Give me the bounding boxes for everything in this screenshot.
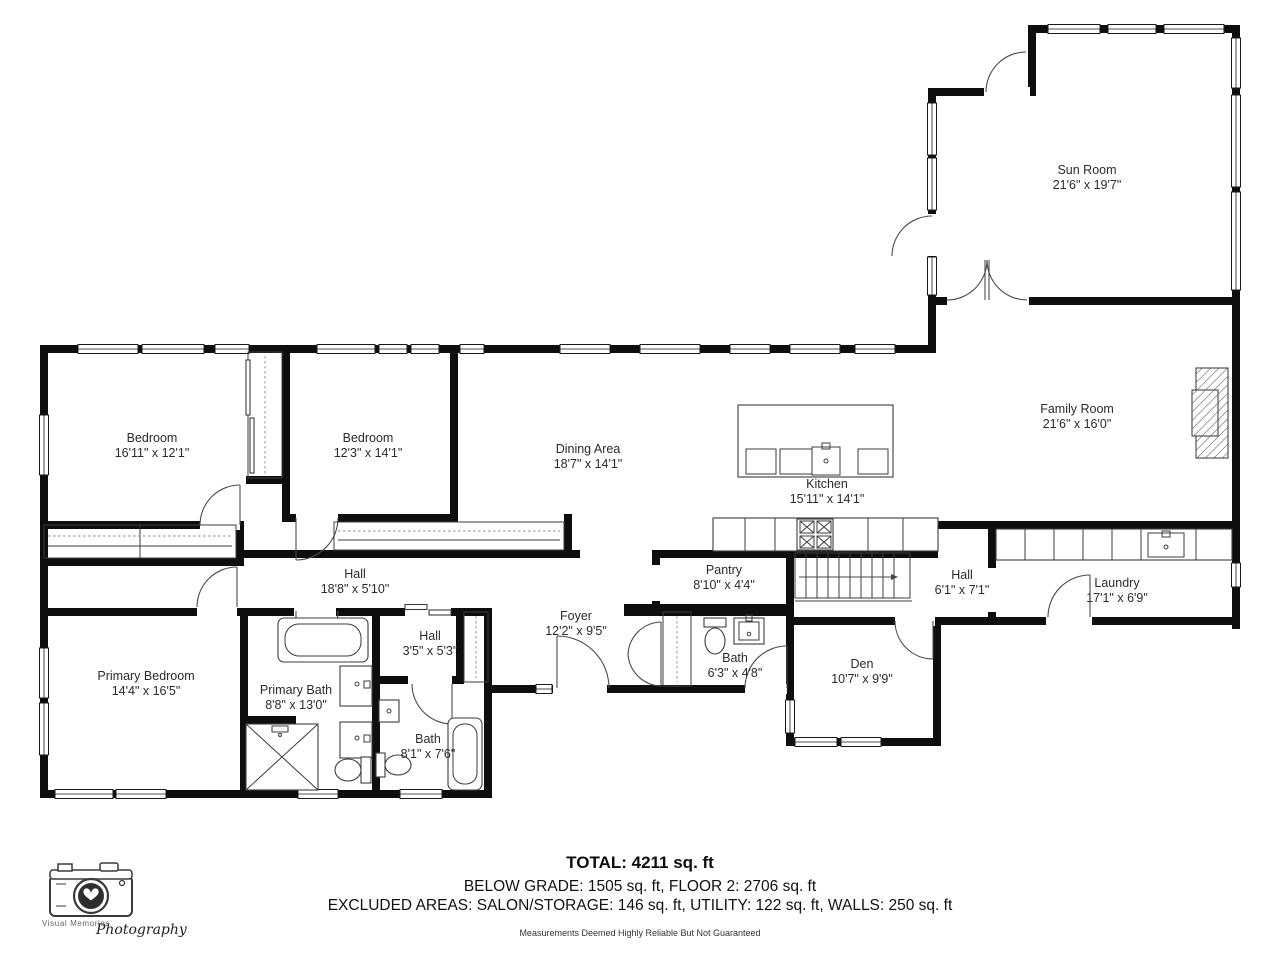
window	[40, 703, 49, 755]
svg-text:8'1" x 7'6": 8'1" x 7'6"	[401, 747, 456, 761]
summary-disclaimer: Measurements Deemed Highly Reliable But …	[519, 928, 760, 938]
closet	[334, 522, 564, 550]
closet	[663, 612, 691, 686]
closet-double-door	[628, 622, 661, 686]
window	[298, 790, 338, 799]
svg-text:16'11" x 12'1": 16'11" x 12'1"	[115, 446, 190, 460]
svg-text:Pantry: Pantry	[706, 563, 743, 577]
sink-icon	[340, 722, 372, 758]
svg-text:Bath: Bath	[722, 651, 748, 665]
door-arc	[1048, 575, 1090, 617]
svg-text:Hall: Hall	[419, 629, 441, 643]
svg-text:Primary Bedroom: Primary Bedroom	[97, 669, 194, 683]
window	[40, 648, 49, 698]
svg-text:Bedroom: Bedroom	[127, 431, 178, 445]
svg-text:Hall: Hall	[951, 568, 973, 582]
door-arc	[200, 485, 240, 525]
svg-text:17'1" x 6'9": 17'1" x 6'9"	[1086, 591, 1148, 605]
window	[730, 345, 770, 354]
window	[1048, 25, 1100, 34]
room-label-laundry: Laundry17'1" x 6'9"	[1086, 576, 1148, 605]
toilet-icon	[704, 618, 726, 654]
window	[928, 103, 937, 155]
summary-block: TOTAL: 4211 sq. ft BELOW GRADE: 1505 sq.…	[328, 853, 953, 938]
summary-line2: BELOW GRADE: 1505 sq. ft, FLOOR 2: 2706 …	[464, 878, 817, 895]
window	[55, 790, 113, 799]
window	[841, 738, 881, 747]
room-label-bath-center: Bath6'3" x 4'8"	[708, 651, 763, 680]
svg-text:6'1" x 7'1": 6'1" x 7'1"	[935, 583, 990, 597]
window	[1232, 192, 1241, 290]
room-label-dining-area: Dining Area18'7" x 14'1"	[554, 442, 623, 471]
room-label-primary-bath: Primary Bath8'8" x 13'0"	[260, 683, 332, 712]
window	[1232, 95, 1241, 187]
window	[379, 345, 407, 354]
svg-text:Bedroom: Bedroom	[343, 431, 394, 445]
room-labels: Sun Room21'6" x 19'7" Family Room21'6" x…	[97, 163, 1147, 761]
room-label-bedroom-2: Bedroom12'3" x 14'1"	[334, 431, 403, 460]
sink-icon	[734, 615, 764, 644]
svg-text:3'5" x 5'3": 3'5" x 5'3"	[403, 644, 458, 658]
window	[536, 685, 552, 694]
svg-text:Den: Den	[851, 657, 874, 671]
room-label-den: Den10'7" x 9'9"	[831, 657, 893, 686]
svg-text:10'7" x 9'9": 10'7" x 9'9"	[831, 672, 893, 686]
svg-text:Family Room: Family Room	[1040, 402, 1114, 416]
floor-plan: Sun Room21'6" x 19'7" Family Room21'6" x…	[0, 0, 1280, 960]
camera-icon	[50, 863, 132, 916]
door-arc	[412, 684, 452, 724]
svg-text:12'3" x 14'1": 12'3" x 14'1"	[334, 446, 403, 460]
window	[1232, 38, 1241, 88]
room-label-family-room: Family Room21'6" x 16'0"	[1040, 402, 1114, 431]
window	[928, 257, 937, 295]
svg-text:Dining Area: Dining Area	[556, 442, 621, 456]
wall-openings	[197, 87, 1092, 694]
svg-text:Hall: Hall	[344, 567, 366, 581]
window	[640, 345, 700, 354]
door-arc	[895, 621, 933, 659]
window	[215, 345, 249, 354]
window	[411, 345, 439, 354]
window	[928, 158, 937, 210]
fireplace-icon	[1192, 368, 1228, 458]
sink-icon	[379, 700, 399, 722]
window	[1232, 563, 1241, 587]
svg-text:15'11" x 14'1": 15'11" x 14'1"	[790, 492, 865, 506]
room-label-foyer: Foyer12'2" x 9'5"	[545, 609, 607, 638]
window	[400, 790, 442, 799]
laundry-fixtures	[996, 529, 1232, 560]
svg-text:8'8" x 13'0": 8'8" x 13'0"	[265, 698, 327, 712]
summary-total: TOTAL: 4211 sq. ft	[566, 853, 714, 872]
svg-text:18'8" x 5'10": 18'8" x 5'10"	[321, 582, 390, 596]
svg-text:21'6" x 16'0": 21'6" x 16'0"	[1043, 417, 1112, 431]
room-label-bath-lower: Bath8'1" x 7'6"	[401, 732, 456, 761]
svg-text:Kitchen: Kitchen	[806, 477, 848, 491]
toilet-icon	[335, 757, 371, 783]
door-arc	[892, 216, 932, 256]
svg-text:Primary Bath: Primary Bath	[260, 683, 332, 697]
kitchen-island	[738, 405, 893, 477]
room-label-pantry: Pantry8'10" x 4'4"	[693, 563, 755, 592]
sink-icon	[340, 666, 372, 706]
window	[1108, 25, 1156, 34]
svg-text:14'4" x 16'5": 14'4" x 16'5"	[112, 684, 181, 698]
room-label-hall-main: Hall18'8" x 5'10"	[321, 567, 390, 596]
window	[786, 700, 795, 733]
window	[790, 345, 840, 354]
svg-text:12'2" x 9'5": 12'2" x 9'5"	[545, 624, 607, 638]
svg-text:18'7" x 14'1": 18'7" x 14'1"	[554, 457, 623, 471]
svg-text:Sun Room: Sun Room	[1057, 163, 1116, 177]
room-label-sun-room: Sun Room21'6" x 19'7"	[1053, 163, 1122, 192]
closet	[246, 352, 282, 478]
french-door	[947, 260, 1027, 300]
svg-text:Foyer: Foyer	[560, 609, 592, 623]
window	[78, 345, 138, 354]
room-label-kitchen: Kitchen15'11" x 14'1"	[790, 477, 865, 506]
summary-line3: EXCLUDED AREAS: SALON/STORAGE: 146 sq. f…	[328, 897, 953, 914]
window	[142, 345, 204, 354]
stove-icon	[797, 519, 833, 550]
photographer-logo: Visual Memories Photography	[42, 863, 188, 938]
window	[1164, 25, 1224, 34]
door-arc	[197, 567, 237, 607]
shower-icon	[246, 724, 318, 790]
window	[795, 738, 837, 747]
logo-script-text: Photography	[95, 922, 188, 938]
window	[855, 345, 895, 354]
window	[317, 345, 375, 354]
window	[40, 415, 49, 475]
window	[116, 790, 166, 799]
svg-text:6'3" x 4'8": 6'3" x 4'8"	[708, 666, 763, 680]
window	[560, 345, 610, 354]
room-label-primary-bedroom: Primary Bedroom14'4" x 16'5"	[97, 669, 194, 698]
door-arc	[557, 636, 609, 688]
bathtub-icon	[278, 618, 368, 662]
window	[460, 345, 484, 354]
door-arc	[986, 52, 1026, 92]
svg-text:Bath: Bath	[415, 732, 441, 746]
staircase	[795, 553, 912, 601]
svg-text:8'10" x 4'4": 8'10" x 4'4"	[693, 578, 755, 592]
room-label-hall-rear: Hall6'1" x 7'1"	[935, 568, 990, 597]
room-label-bedroom-1: Bedroom16'11" x 12'1"	[115, 431, 190, 460]
svg-text:Laundry: Laundry	[1094, 576, 1140, 590]
svg-text:21'6" x 19'7": 21'6" x 19'7"	[1053, 178, 1122, 192]
room-label-hall-small: Hall3'5" x 5'3"	[403, 629, 458, 658]
